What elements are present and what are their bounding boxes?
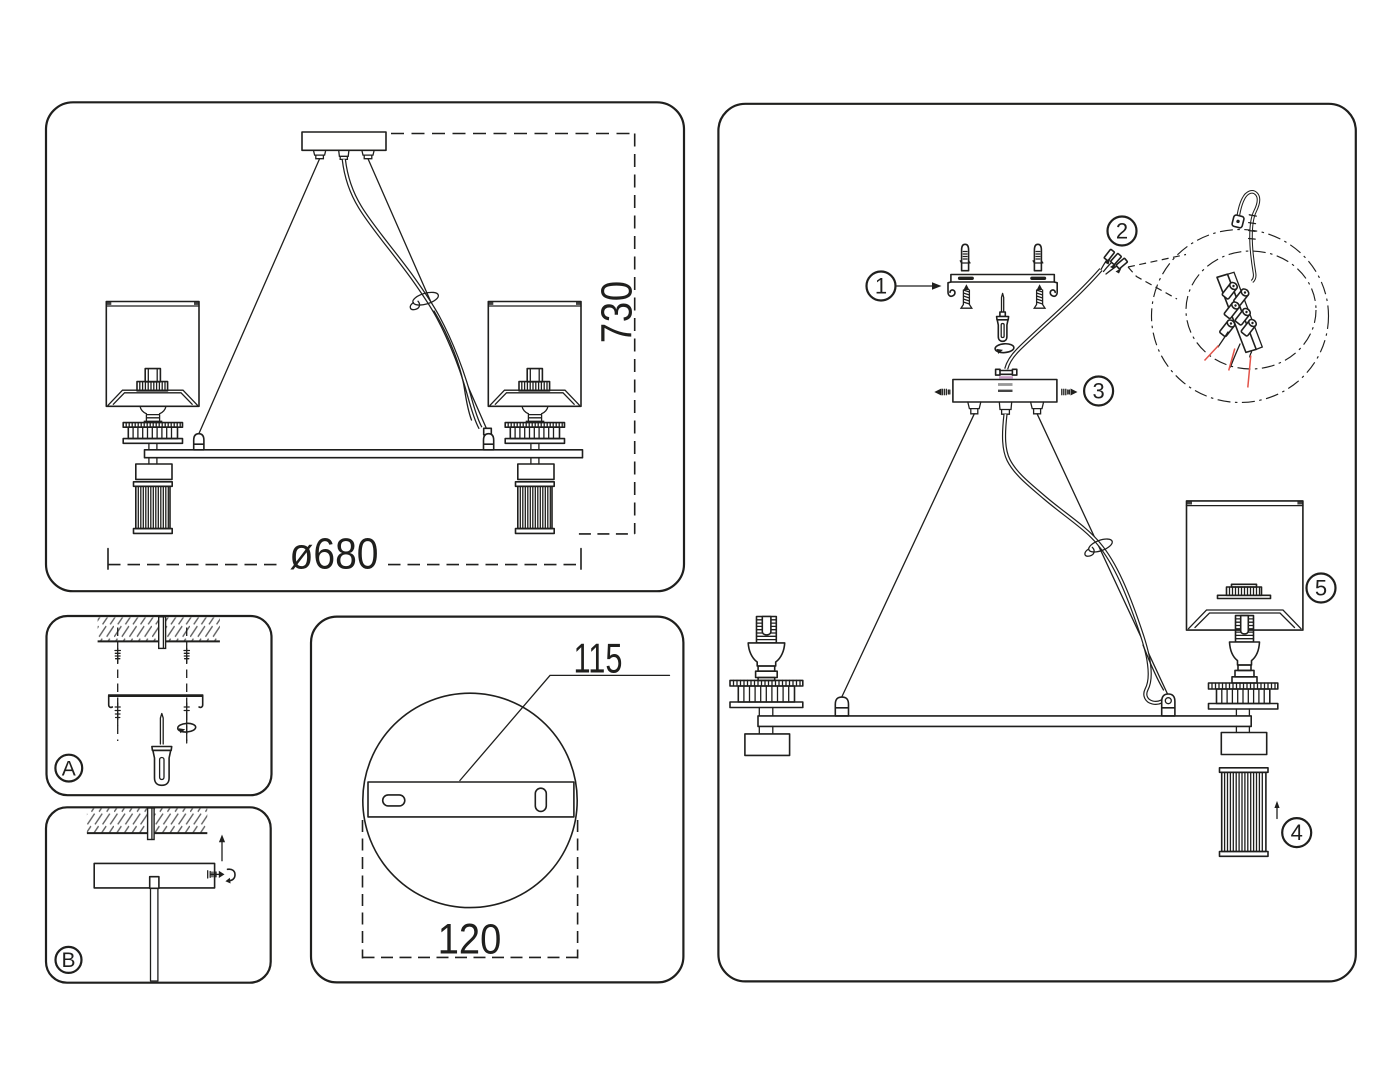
svg-text:1: 1 — [875, 274, 887, 299]
svg-text:4: 4 — [1291, 820, 1303, 845]
svg-text:115: 115 — [574, 635, 623, 682]
svg-text:730: 730 — [594, 280, 642, 343]
svg-text:3: 3 — [1092, 379, 1104, 404]
svg-text:B: B — [61, 949, 75, 972]
svg-text:ø680: ø680 — [290, 531, 379, 579]
svg-text:A: A — [62, 757, 76, 780]
svg-text:2: 2 — [1116, 219, 1128, 244]
svg-text:120: 120 — [438, 916, 502, 964]
svg-text:5: 5 — [1315, 576, 1327, 601]
